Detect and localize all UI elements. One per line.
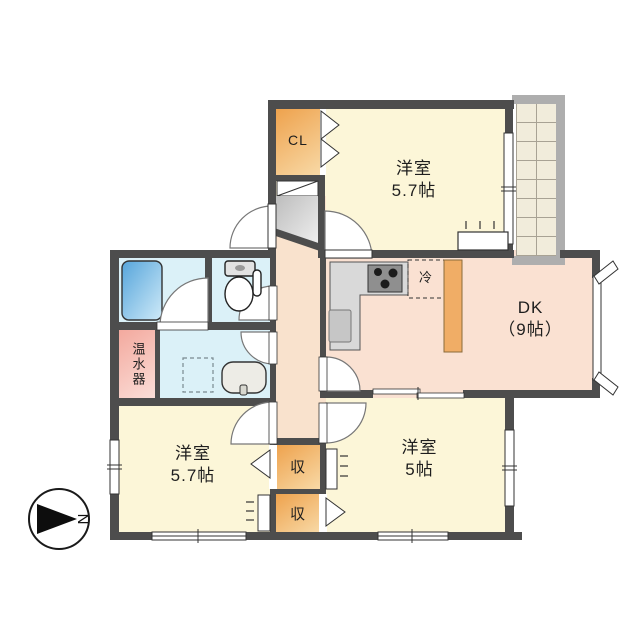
bedroom-right-door bbox=[319, 403, 327, 443]
water-heater-label: 温水器 bbox=[121, 334, 153, 394]
dk-door-swing bbox=[326, 357, 360, 391]
kitchen-cabinet bbox=[329, 310, 351, 342]
casement-window-flap bbox=[594, 372, 618, 395]
room-size: （9帖） bbox=[458, 319, 603, 341]
toilet-arm bbox=[253, 270, 261, 296]
refrigerator-label: 冷 bbox=[408, 270, 444, 287]
storage-upper-label: 収 bbox=[276, 458, 320, 478]
bathtub-icon bbox=[122, 261, 162, 320]
air-conditioner-icon bbox=[458, 232, 508, 250]
storage-upper-panel bbox=[326, 449, 337, 489]
casement-window-flap bbox=[594, 261, 618, 284]
sink-faucet bbox=[240, 385, 247, 395]
stove-burner bbox=[381, 280, 390, 289]
room-name: 洋室 bbox=[342, 437, 497, 459]
north-label: N bbox=[74, 514, 91, 525]
closet-bifold-door bbox=[321, 111, 339, 139]
toilet-button bbox=[235, 265, 245, 271]
room-name: DK bbox=[458, 297, 603, 319]
bathroom-door-swing bbox=[160, 278, 208, 326]
window bbox=[505, 430, 514, 506]
storage-lower-label: 収 bbox=[276, 505, 320, 525]
washing-machine-space bbox=[183, 358, 213, 392]
room-size: 5帖 bbox=[342, 459, 497, 481]
storage-label-text: 収 bbox=[290, 506, 306, 523]
dk-door bbox=[319, 357, 327, 391]
bedroom-top-door bbox=[325, 250, 372, 258]
bedroom-left-label: 洋室 5.7帖 bbox=[118, 443, 268, 487]
sliding-door-panel bbox=[373, 389, 420, 394]
washroom-door-swing bbox=[241, 332, 273, 364]
bathroom-door bbox=[157, 322, 208, 330]
entrance-door-swing bbox=[230, 206, 272, 248]
dk-label: DK （9帖） bbox=[458, 297, 603, 341]
room-name: 洋室 bbox=[330, 158, 498, 180]
refrigerator-label-text: 冷 bbox=[419, 270, 433, 285]
closet-label: CL bbox=[276, 131, 320, 149]
room-name: 洋室 bbox=[118, 443, 268, 465]
entrance-door bbox=[268, 204, 276, 248]
bedroom-right-label: 洋室 5帖 bbox=[342, 437, 497, 481]
storage-label-text: 収 bbox=[290, 459, 306, 476]
closet-label-text: CL bbox=[288, 132, 308, 148]
toilet-bowl bbox=[225, 277, 253, 311]
bedroom-left-door-swing bbox=[231, 402, 273, 444]
storage-lower-panel bbox=[258, 495, 270, 531]
sliding-door-panel bbox=[417, 393, 464, 398]
stove-burner bbox=[374, 268, 382, 276]
stove-burner bbox=[389, 269, 398, 278]
bedroom-top-label: 洋室 5.7帖 bbox=[330, 158, 498, 202]
storage-lower-bifold-door bbox=[326, 498, 345, 526]
room-size: 5.7帖 bbox=[330, 180, 498, 202]
water-heater-label-text: 温水器 bbox=[129, 342, 146, 387]
toilet-door bbox=[269, 286, 277, 320]
bedroom-left-door bbox=[269, 402, 277, 444]
washroom-door bbox=[269, 332, 277, 364]
floor-plan: N CL 洋室 5.7帖 DK （9帖） 洋室 5.7帖 洋室 5帖 収 収 冷… bbox=[0, 0, 640, 640]
balcony-sliding-window bbox=[504, 133, 513, 244]
room-size: 5.7帖 bbox=[118, 465, 268, 487]
